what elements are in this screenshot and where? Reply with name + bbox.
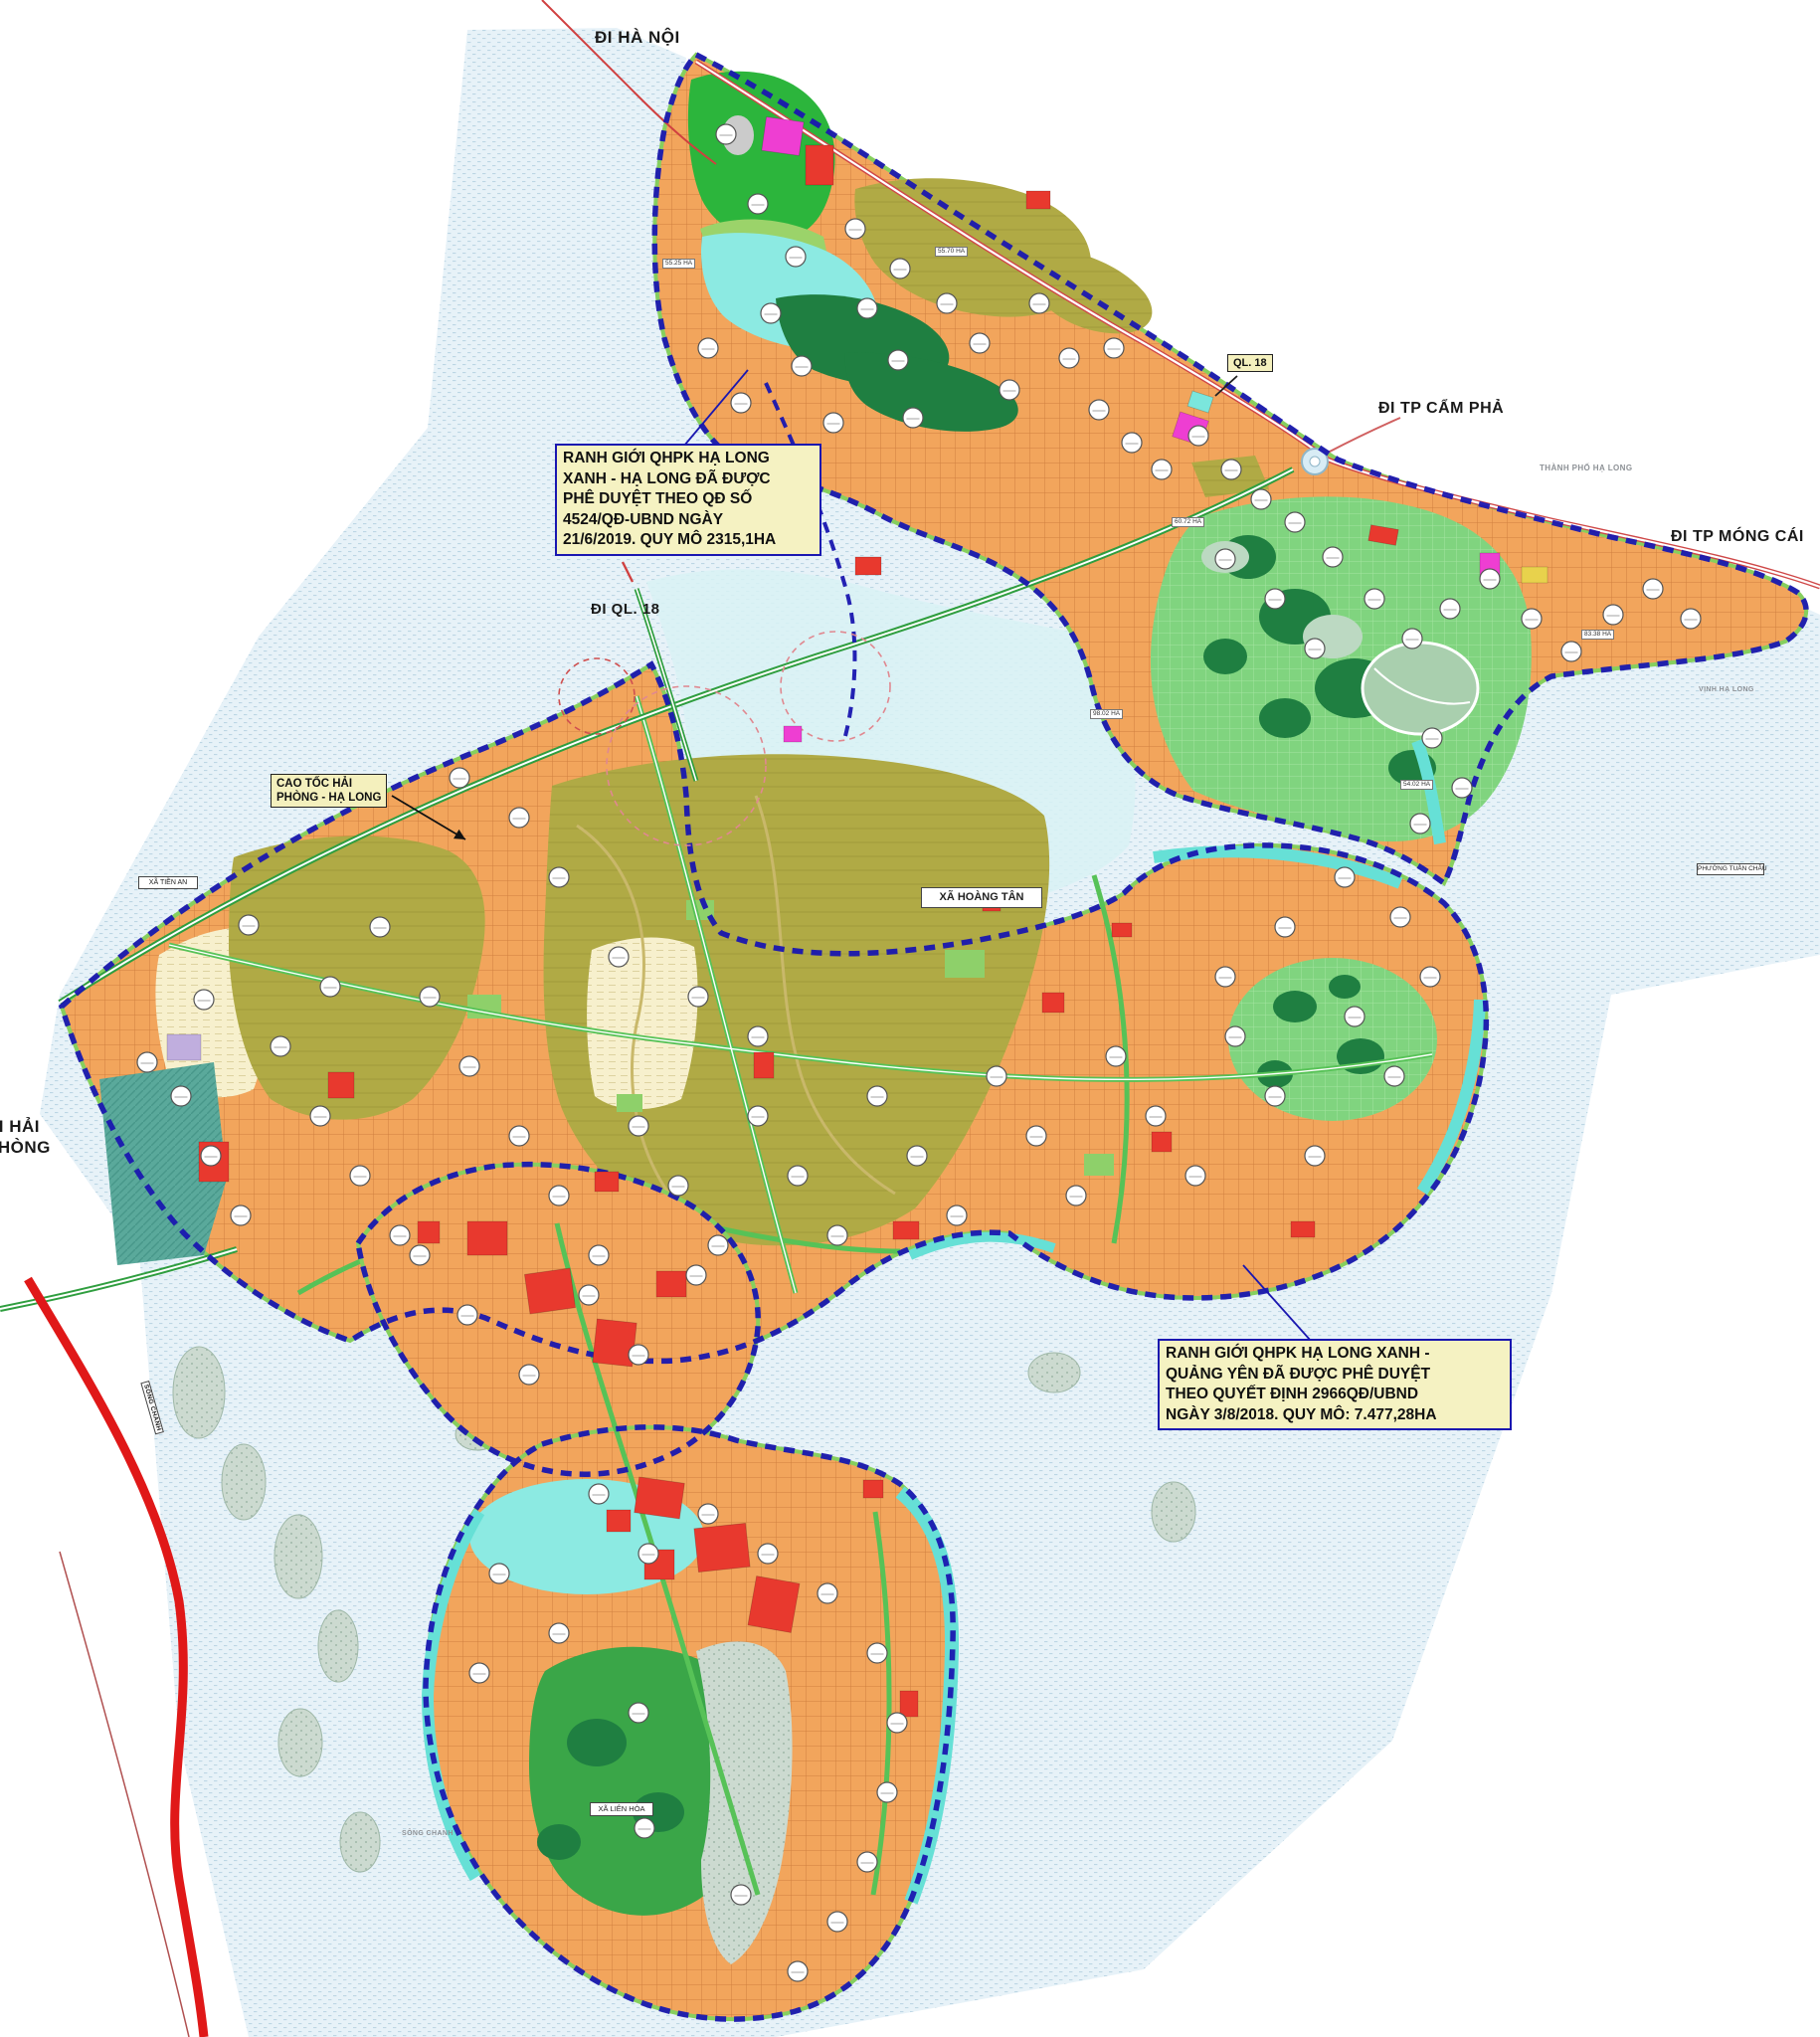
parcel-marker <box>1146 1106 1166 1126</box>
parcel-marker <box>788 1166 808 1186</box>
parcel-marker <box>509 808 529 828</box>
parcel-marker <box>1059 348 1079 368</box>
annotation-quangyen-boundary: RANH GIỚI QHPK HẠ LONG XANH - QUẢNG YÊN … <box>1158 1339 1512 1430</box>
parcel-marker <box>867 1643 887 1663</box>
parcel-marker <box>239 915 259 935</box>
parcel-marker <box>1345 1007 1365 1026</box>
parcel-marker <box>549 1623 569 1643</box>
parcel-marker <box>1215 549 1235 569</box>
parcel-marker <box>1188 426 1208 446</box>
parcel-marker <box>1323 547 1343 567</box>
parcel-marker <box>748 194 768 214</box>
annotation-line: XANH - HẠ LONG ĐÃ ĐƯỢC <box>563 469 814 490</box>
parcel-marker <box>1026 1126 1046 1146</box>
parcel-marker <box>350 1166 370 1186</box>
parcel-marker <box>370 917 390 937</box>
parcel-marker <box>231 1205 251 1225</box>
parcel-marker <box>450 768 469 788</box>
parcel-marker <box>1422 728 1442 748</box>
colored-parcel <box>754 1052 774 1078</box>
parcel-marker <box>509 1126 529 1146</box>
annotation-line: PHÊ DUYỆT THEO QĐ SỐ <box>563 489 814 510</box>
parcel-marker <box>638 1544 658 1564</box>
parcel-marker <box>708 1235 728 1255</box>
parcel-marker <box>1089 400 1109 420</box>
colored-parcel <box>694 1523 750 1572</box>
parcel-marker <box>888 350 908 370</box>
road-label-hai-phong: ĐI HẢI PHÒNG <box>0 1116 51 1158</box>
parcel-marker <box>1522 609 1542 629</box>
parcel-marker <box>579 1285 599 1305</box>
expressway-label-line: CAO TỐC HẢI <box>276 777 381 791</box>
parcel-marker <box>1000 380 1019 400</box>
parcel-marker <box>1285 512 1305 532</box>
area-tag: 60.72 HA <box>1172 517 1204 527</box>
road-label-line: ĐI HẢI <box>0 1116 51 1137</box>
parcel-marker <box>1561 642 1581 661</box>
parcel-marker <box>457 1305 477 1325</box>
colored-parcel <box>467 1221 507 1255</box>
colored-parcel <box>863 1480 883 1498</box>
colored-parcel <box>328 1072 354 1098</box>
annotation-line: RANH GIỚI QHPK HẠ LONG <box>563 449 814 469</box>
parcel-marker <box>1066 1186 1086 1205</box>
colored-parcel <box>784 726 802 742</box>
commune-label-tien-an: XÃ TIỀN AN <box>138 876 198 889</box>
parcel-marker <box>589 1245 609 1265</box>
parcel-marker <box>589 1484 609 1504</box>
parcel-marker <box>1104 338 1124 358</box>
parcel-marker <box>845 219 865 239</box>
area-tag: 55.25 HA <box>662 259 695 269</box>
parcel-marker <box>1681 609 1701 629</box>
parcel-marker <box>1029 293 1049 313</box>
ql18-badge: QL. 18 <box>1227 354 1273 372</box>
map-canvas[interactable]: ĐI HÀ NỘI QL. 18 ĐI TP CẨM PHẢ ĐI TP MÓN… <box>0 0 1820 2037</box>
parcel-marker <box>1643 579 1663 599</box>
parcel-marker <box>857 1852 877 1872</box>
colored-parcel <box>1042 993 1064 1013</box>
ward-label-tuan-chau: PHƯỜNG TUẦN CHÂU <box>1697 863 1764 875</box>
parcel-marker <box>320 977 340 997</box>
colored-parcel <box>1152 1132 1172 1152</box>
colored-parcel <box>748 1576 800 1633</box>
parcel-marker <box>987 1066 1006 1086</box>
parcel-marker <box>1384 1066 1404 1086</box>
colored-parcel <box>595 1172 619 1192</box>
parcel-marker <box>947 1205 967 1225</box>
parcel-marker <box>1106 1046 1126 1066</box>
parcel-marker <box>519 1365 539 1385</box>
river-label-song-chanh: SÔNG CHANH <box>402 1830 454 1837</box>
parcel-marker <box>201 1146 221 1166</box>
parcel-marker <box>1335 867 1355 887</box>
colored-parcel <box>167 1034 201 1060</box>
annotation-line: QUẢNG YÊN ĐÃ ĐƯỢC PHÊ DUYỆT <box>1166 1365 1504 1386</box>
parcel-marker <box>688 987 708 1007</box>
parcel-marker <box>1122 433 1142 453</box>
commune-label-hoang-tan: XÃ HOÀNG TÂN <box>921 887 1042 908</box>
parcel-marker <box>1251 489 1271 509</box>
map-svg <box>0 0 1820 2037</box>
parcel-marker <box>1402 629 1422 648</box>
parcel-marker <box>686 1265 706 1285</box>
parcel-marker <box>716 124 736 144</box>
parcel-marker <box>668 1176 688 1196</box>
parcel-marker <box>1265 589 1285 609</box>
parcel-marker <box>410 1245 430 1265</box>
parcel-marker <box>1152 460 1172 479</box>
colored-parcel <box>893 1221 919 1239</box>
commune-label-lien-hoa: XÃ LIÊN HÒA <box>590 1802 653 1816</box>
bay-label-ha-long: VỊNH HẠ LONG <box>1699 686 1754 693</box>
parcel-marker <box>857 298 877 318</box>
parcel-marker <box>469 1663 489 1683</box>
parcel-marker <box>1225 1026 1245 1046</box>
annotation-line: THEO QUYẾT ĐỊNH 2966QĐ/UBND <box>1166 1385 1504 1405</box>
parcel-marker <box>1452 778 1472 798</box>
parcel-marker <box>792 356 812 376</box>
parcel-marker <box>459 1056 479 1076</box>
parcel-marker <box>758 1544 778 1564</box>
parcel-marker <box>1221 460 1241 479</box>
parcel-marker <box>1440 599 1460 619</box>
colored-parcel <box>900 1691 918 1717</box>
colored-parcel <box>607 1510 631 1532</box>
colored-parcel <box>524 1268 575 1314</box>
parcel-marker <box>137 1052 157 1072</box>
parcel-marker <box>489 1564 509 1583</box>
annotation-line: 21/6/2019. QUY MÔ 2315,1HA <box>563 530 814 551</box>
annotation-line: 4524/QĐ-UBND NGÀY <box>563 510 814 531</box>
colored-parcel <box>656 1271 686 1297</box>
parcel-marker <box>877 1782 897 1802</box>
parcel-marker <box>827 1912 847 1932</box>
parcel-marker <box>788 1961 808 1981</box>
parcel-marker <box>390 1225 410 1245</box>
parcel-marker <box>748 1106 768 1126</box>
parcel-marker <box>609 947 629 967</box>
area-tag: 54.02 HA <box>1400 780 1433 790</box>
parcel-marker <box>698 338 718 358</box>
parcel-marker <box>1603 605 1623 625</box>
expressway-label-line: PHÒNG - HẠ LONG <box>276 791 381 805</box>
parcel-marker <box>629 1116 648 1136</box>
road-label-mong-cai: ĐI TP MÓNG CÁI <box>1671 528 1804 546</box>
parcel-marker <box>1265 1086 1285 1106</box>
parcel-marker <box>629 1703 648 1723</box>
parcel-marker <box>761 303 781 323</box>
parcel-marker <box>907 1146 927 1166</box>
parcel-marker <box>635 1818 654 1838</box>
parcel-marker <box>748 1026 768 1046</box>
colored-parcel <box>806 145 833 185</box>
parcel-marker <box>629 1345 648 1365</box>
parcel-marker <box>731 393 751 413</box>
parcel-marker <box>698 1504 718 1524</box>
parcel-marker <box>271 1036 290 1056</box>
parcel-marker <box>1185 1166 1205 1186</box>
parcel-marker <box>867 1086 887 1106</box>
parcel-marker <box>731 1885 751 1905</box>
parcel-marker <box>1305 639 1325 658</box>
colored-parcel <box>1112 923 1132 937</box>
parcel-marker <box>1275 917 1295 937</box>
colored-parcel <box>855 557 881 575</box>
parcel-marker <box>970 333 990 353</box>
colored-parcel <box>1291 1221 1315 1237</box>
annotation-line: RANH GIỚI QHPK HẠ LONG XANH - <box>1166 1344 1504 1365</box>
parcel-marker <box>903 408 923 428</box>
parcel-marker <box>937 293 957 313</box>
colored-parcel <box>635 1477 685 1519</box>
colored-parcel <box>1026 191 1050 209</box>
colored-parcel <box>418 1221 440 1243</box>
parcel-marker <box>420 987 440 1007</box>
parcel-marker <box>194 990 214 1010</box>
parcel-marker <box>1410 814 1430 833</box>
road-label-line: PHÒNG <box>0 1137 51 1158</box>
parcel-marker <box>310 1106 330 1126</box>
expressway-label: CAO TỐC HẢI PHÒNG - HẠ LONG <box>271 774 387 808</box>
parcel-marker <box>1305 1146 1325 1166</box>
parcel-marker <box>827 1225 847 1245</box>
road-label-ql18: ĐI QL. 18 <box>591 601 660 618</box>
road-label-cam-pha: ĐI TP CẨM PHẢ <box>1378 400 1504 418</box>
parcel-marker <box>890 259 910 278</box>
parcel-marker <box>1390 907 1410 927</box>
parcel-marker <box>549 1186 569 1205</box>
parcel-marker <box>887 1713 907 1733</box>
city-label-ha-long: THÀNH PHỐ HẠ LONG <box>1540 463 1632 472</box>
colored-parcel <box>762 117 804 156</box>
parcel-marker <box>1215 967 1235 987</box>
parcel-marker <box>171 1086 191 1106</box>
parcel-marker <box>786 247 806 267</box>
parcel-marker <box>1480 569 1500 589</box>
area-tag: 98.02 HA <box>1090 709 1123 719</box>
annotation-halong-boundary: RANH GIỚI QHPK HẠ LONG XANH - HẠ LONG ĐÃ… <box>555 444 821 556</box>
area-tag: 55.70 HA <box>935 247 968 257</box>
colored-parcel <box>1522 567 1547 583</box>
parcel-marker <box>818 1583 837 1603</box>
road-label-hanoi: ĐI HÀ NỘI <box>595 28 680 48</box>
parcel-marker <box>1420 967 1440 987</box>
area-tag: 83.38 HA <box>1581 630 1614 640</box>
parcel-marker <box>823 413 843 433</box>
parcel-marker <box>549 867 569 887</box>
parcel-marker <box>1365 589 1384 609</box>
annotation-line: NGÀY 3/8/2018. QUY MÔ: 7.477,28HA <box>1166 1405 1504 1426</box>
